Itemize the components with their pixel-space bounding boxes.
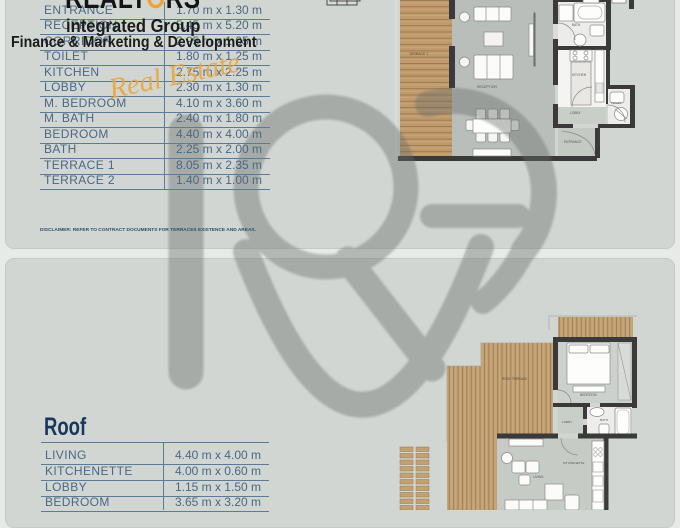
svg-text:ENTRANCE: ENTRANCE bbox=[564, 140, 582, 144]
svg-text:BEDROOM: BEDROOM bbox=[580, 393, 597, 397]
svg-text:LIVING: LIVING bbox=[533, 475, 544, 479]
svg-text:ROOF TERRACE: ROOF TERRACE bbox=[502, 377, 527, 381]
svg-text:KITCHENETTE: KITCHENETTE bbox=[563, 461, 585, 465]
svg-text:LOBBY: LOBBY bbox=[562, 420, 572, 424]
svg-text:BATH: BATH bbox=[572, 23, 581, 27]
svg-text:TOILET: TOILET bbox=[611, 101, 622, 105]
svg-text:RECEPTION: RECEPTION bbox=[477, 85, 497, 89]
svg-text:LOBBY: LOBBY bbox=[570, 111, 582, 115]
svg-text:TERRACE 1: TERRACE 1 bbox=[409, 52, 428, 56]
svg-text:KITCHEN: KITCHEN bbox=[572, 73, 587, 77]
svg-text:BATH: BATH bbox=[600, 418, 608, 422]
